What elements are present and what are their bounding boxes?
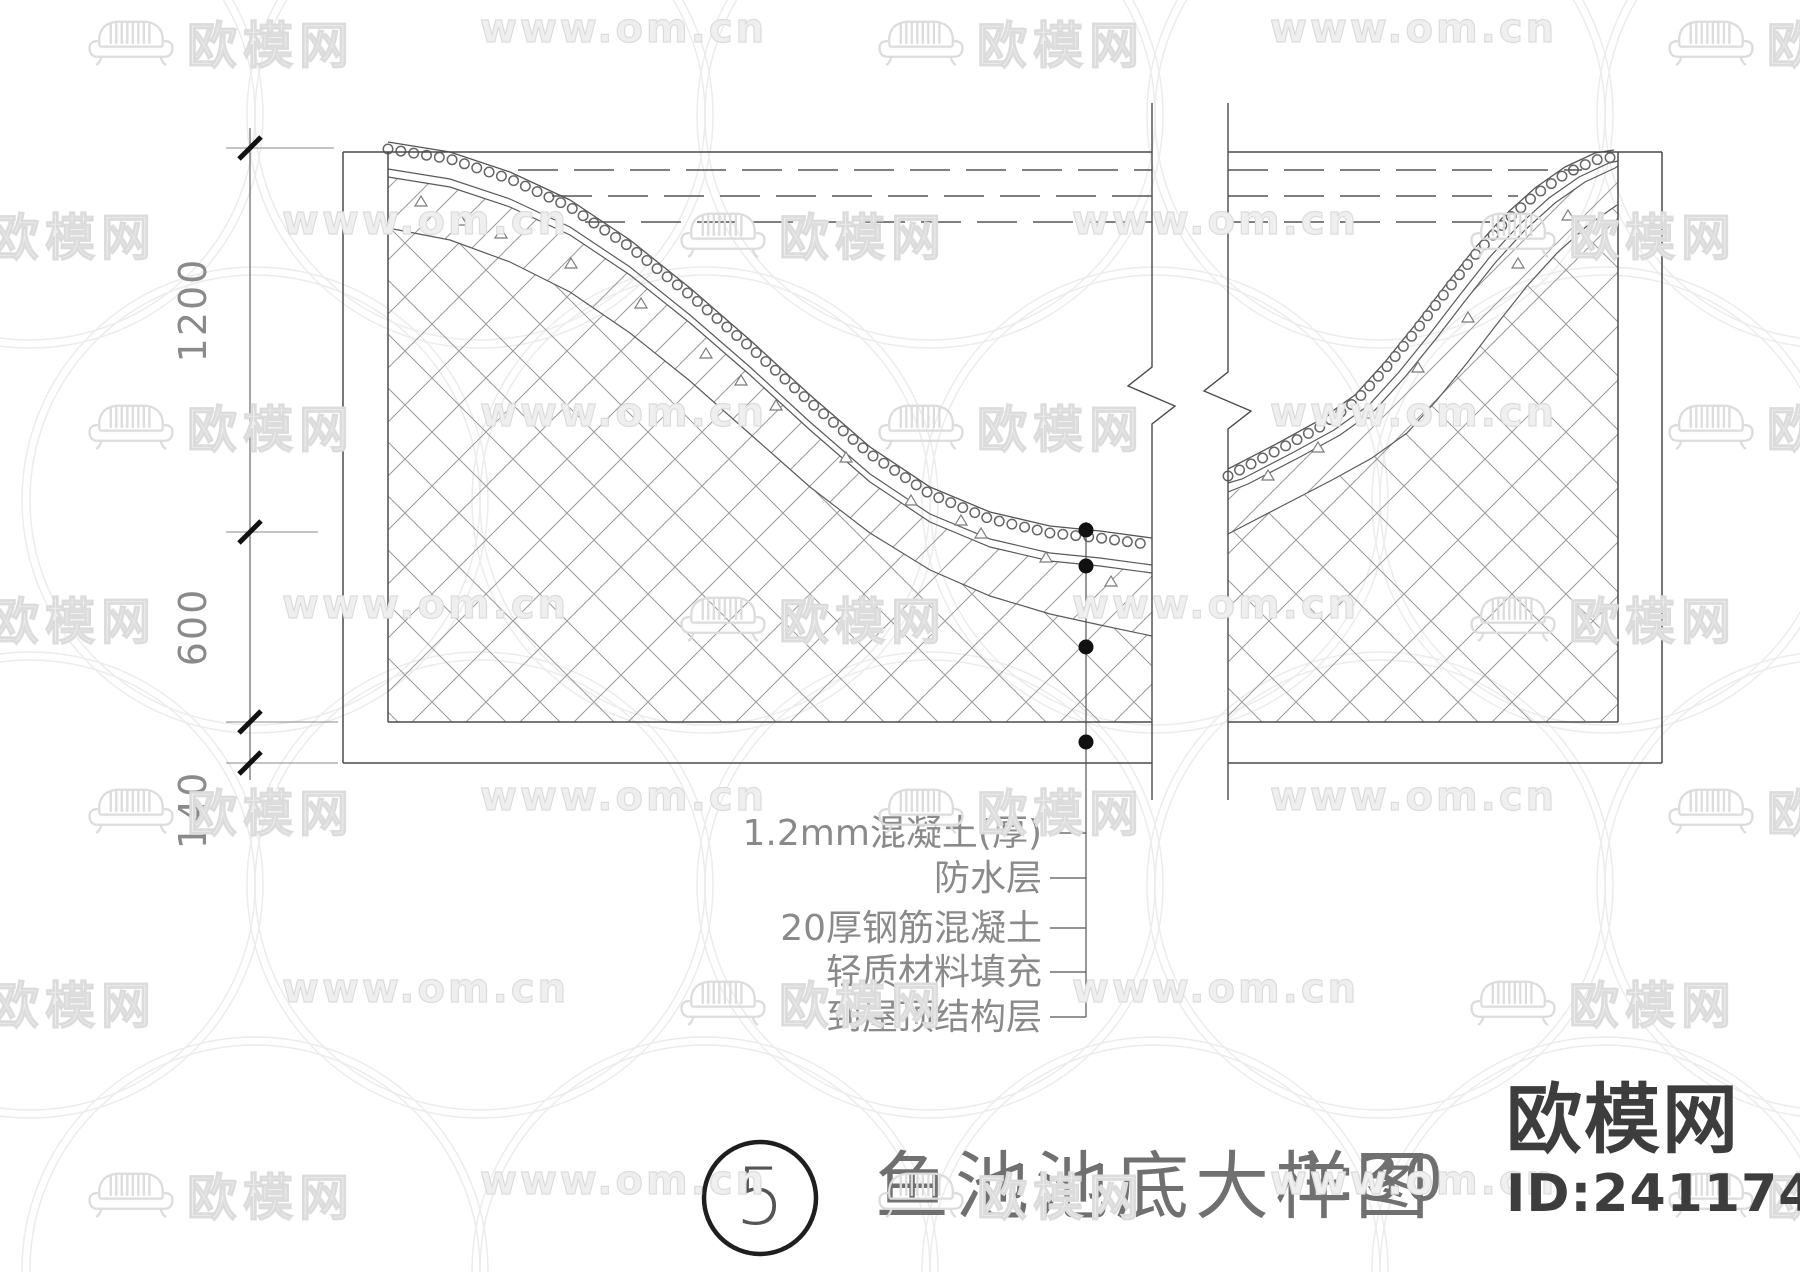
water-level-lines <box>518 170 1582 222</box>
pond-structure <box>343 103 1662 800</box>
callout-lightweight-fill: 轻质材料填充 <box>826 952 1042 993</box>
detail-number: 5 <box>735 1153 785 1243</box>
dim-label-1200: 1200 <box>171 258 215 363</box>
brand-site-name: 欧模网 <box>1506 1082 1740 1158</box>
callout-reinforced-concrete: 20厚钢筋混凝土 <box>780 908 1042 949</box>
dim-label-600: 600 <box>171 588 215 667</box>
lightweight-fill-right <box>1228 203 1618 722</box>
lightweight-fill-left <box>388 228 1152 722</box>
leader-tick-lines <box>1050 833 1086 1017</box>
drawing-scale: 1:30 <box>1292 1142 1447 1215</box>
title-block: 5 鱼池池底大样图 1:30 <box>704 1142 1447 1254</box>
callout-waterproof-layer: 防水层 <box>934 858 1042 899</box>
callout-roof-structure-layer: 到屋顶结构层 <box>826 997 1042 1038</box>
brand-model-id: ID:2411749 <box>1506 1168 1800 1220</box>
extension-lines <box>226 148 338 763</box>
dim-label-140: 140 <box>171 771 215 850</box>
dimension-column: 1200 600 140 <box>171 128 338 849</box>
callout-concrete-1-2mm: 1.2mm混凝土(厚) <box>743 813 1042 854</box>
